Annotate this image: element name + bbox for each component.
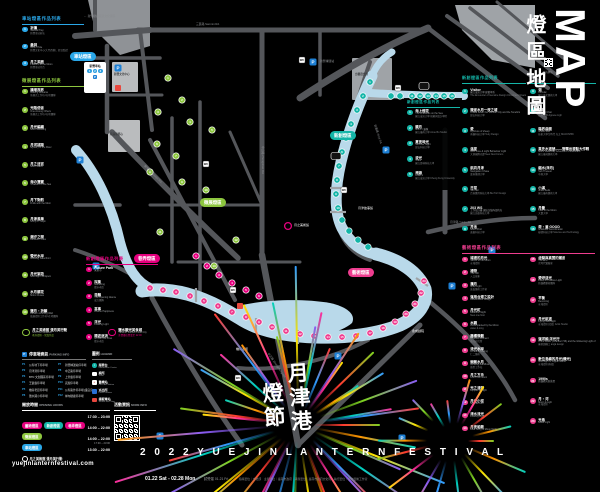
artwork-location: 崑山科技大學 — [470, 115, 520, 118]
special-entry: 鹽水觀光美食城Yanshui Tourism Food City美食攤位營業至 … — [108, 328, 180, 338]
artwork-item: 20數位島嶼的月光(爍光)Moonlight of Digital Island… — [530, 357, 596, 377]
artwork-number: 2 — [462, 108, 468, 114]
map-artwork-marker: 13 — [311, 333, 317, 339]
artwork-number: 13 — [530, 167, 536, 173]
artwork-subtitle: Glowing Waterfront — [30, 258, 50, 261]
opening-time: 14:00 – 22:00 — [88, 437, 110, 441]
artwork-location: 次時代實驗室 — [538, 263, 565, 266]
artwork-subtitle: Floating Light — [94, 324, 108, 327]
parking-marker: P — [335, 353, 342, 360]
station-name: 新營車站 — [86, 64, 105, 68]
artwork-subtitle: Wave Light — [538, 422, 550, 425]
artwork-number: 21 — [530, 378, 536, 384]
artwork-number: 16 — [530, 226, 536, 232]
legend-heading-en: LEGEND — [101, 352, 113, 356]
artwork-number: 18 — [530, 317, 536, 323]
artwork-item: 5月光町Beautiful NightNew one floor — [462, 308, 526, 321]
artwork-location: 中原大學 — [538, 174, 554, 177]
svg-text:P: P — [450, 284, 453, 289]
artwork-subtitle: 新媒體光影裝置 — [538, 381, 555, 384]
parking-marker: P — [157, 433, 164, 440]
artwork-location: 技術大學生時代 光之 MACOSHIK — [538, 134, 574, 137]
artwork-number: 5 — [86, 321, 92, 327]
artwork-number: 13 — [462, 413, 468, 419]
svg-text:11: 11 — [410, 94, 414, 98]
artwork-location: 大葉大學 — [538, 213, 556, 216]
artwork-number: 4 — [22, 144, 28, 150]
artwork-item: 1擴增視界Waiting Diorama馬賽克工作坊×在地團隊 — [22, 88, 84, 106]
map-artwork-marker — [397, 93, 403, 99]
map-artwork-marker: 16 — [353, 333, 359, 339]
artwork-subtitle: Flowing Light — [470, 416, 484, 419]
artwork-location: 微型工作站 — [470, 367, 489, 370]
museum-label: 月之美術館 漫月美行動 — [22, 457, 62, 461]
art-list-col2: 15虛擬與真實的邂逅The End次時代實驗室16愛呀這光Flash of Po… — [530, 256, 596, 438]
map-artwork-marker: 14 — [325, 334, 331, 340]
svg-text:17: 17 — [368, 331, 372, 335]
parking-item: P9上帝廟停車場 — [58, 375, 94, 379]
artwork-number: 3 — [22, 125, 28, 131]
artwork-item: 10月之方舟Ark of the Moon — [462, 373, 526, 386]
artwork-item: 23光島Wave Light — [530, 418, 596, 438]
place-label: 月津故事館 — [358, 206, 373, 210]
map-artwork-marker: 21 — [412, 301, 418, 307]
artwork-number: 19 — [530, 337, 536, 343]
artwork-item: 5航向月津Navigation Chase嘉南藥理大學 — [462, 166, 526, 186]
map-artwork-marker: 1 — [367, 79, 373, 85]
artwork-item: 6海の寶藏Treasure of the Sea — [22, 180, 84, 198]
parking-item: P3BTN 文創園區停車場 — [22, 375, 54, 379]
artwork-location: 豪華朗機工 angá design — [538, 344, 596, 347]
artwork-item: 16愛呀這光Flash of Positive Light新媒體藝術團隊 — [530, 276, 596, 296]
artwork-location: 入口意象 — [470, 276, 480, 279]
artwork-location: New one floor — [470, 315, 486, 318]
artwork-number: 3 — [22, 61, 28, 67]
svg-text:P: P — [384, 148, 387, 153]
festival-dates: 01.22 Sat - 02.28 Mon — [145, 476, 195, 482]
artwork-item: 5溯源Artist S國立成功大學 Cheng Kung University — [407, 171, 460, 187]
special-entry-icon — [108, 329, 116, 337]
artwork-number: 1 — [462, 89, 468, 95]
artwork-item: 11臨界曲面Graffiti and技術大學生時代 光之 MACOSHIK — [530, 127, 596, 147]
artwork-subtitle: Boat Song of Moon Night — [470, 429, 497, 432]
svg-text:12: 12 — [234, 238, 238, 242]
artwork-item: 3愛A picture of sheep南臺科技大學 Tetry Design — [462, 127, 526, 147]
artwork-item: 15月暈Halo of the Moon大葉大學 — [530, 206, 596, 226]
map-artwork-marker: 8 — [334, 177, 340, 183]
svg-text:20: 20 — [404, 312, 408, 316]
artwork-number: 11 — [462, 387, 468, 393]
artwork-item: 4月河謎蹤Mystery of the River — [22, 143, 84, 161]
parking-icon: P — [22, 352, 27, 357]
artwork-location: The Encounter of Genuine Design Unrushed… — [470, 95, 526, 98]
legend-heading-zh: 圖例 — [92, 352, 100, 356]
place-label: 永成戲院 — [412, 329, 424, 333]
moreinfo-heading-zh: 活動資訊 — [114, 402, 130, 407]
svg-text:10: 10 — [336, 206, 340, 210]
artwork-item: 12月光小徑Moonlit Path — [462, 399, 526, 412]
artwork-number: 4 — [407, 156, 413, 162]
artwork-location: 國立臺南大學 Anne Bo Studio — [415, 132, 447, 135]
artwork-location: 水域燈區(北段) Artist Studio — [538, 324, 568, 327]
artwork-location: 水域燈區 — [538, 404, 552, 407]
artwork-subtitle: Moon Maze — [30, 166, 44, 169]
svg-text:WC: WC — [300, 58, 304, 62]
artwork-location: 新營車站前站 — [30, 33, 44, 36]
svg-text:15: 15 — [442, 94, 446, 98]
block-label: 台糖宿舍群 — [355, 72, 368, 76]
artwork-location: 樹德科技大學 Science and Technology — [538, 232, 579, 235]
artwork-location: 新媒體藝術團隊 — [538, 283, 561, 286]
artwork-item: 2競逐水月一夜之城Chase Down the Wonder City and … — [462, 108, 526, 128]
art-list-heading: 藝術燈區作品列表 — [462, 245, 595, 254]
svg-text:14: 14 — [326, 335, 330, 339]
artwork-location: 馬賽克工作坊×在地團隊 — [30, 95, 55, 98]
map-artwork-marker: 3 — [216, 272, 222, 278]
parking-icon: P — [93, 75, 97, 79]
artwork-item: 7蜃樓微觀Covered Moment微光研究所 — [462, 334, 526, 347]
inset-list: 1海上煙花The Fireworks on the Sea國立成功大學 規劃與設… — [407, 109, 460, 187]
artwork-number: 5 — [407, 172, 413, 178]
artwork-number: 3 — [86, 294, 92, 300]
parking-item: P7新營轉運站停車場 — [58, 363, 94, 367]
artwork-number: 23 — [530, 418, 536, 424]
artwork-location: 成大團隊 — [94, 300, 116, 303]
artwork-number: 1 — [22, 27, 28, 33]
artwork-number: 15 — [530, 257, 536, 263]
map-artwork-marker: 12 — [297, 331, 303, 337]
artwork-item: 4喜事Double Happiness — [86, 307, 158, 321]
more-info: 活動資訊 MORE INFO — [114, 402, 156, 446]
artwork-location: 國立成功大學 規劃與設計學院 — [415, 116, 447, 119]
svg-text:P: P — [311, 60, 314, 65]
artwork-item: 4溫度With Love & Light Behaviour Light大港國際… — [462, 147, 526, 167]
svg-text:13: 13 — [426, 94, 430, 98]
map-artwork-marker: 10 — [269, 324, 275, 330]
zone-badge: 徵展燈區 — [200, 198, 226, 207]
artwork-number: 10 — [22, 254, 28, 260]
svg-text:P: P — [116, 66, 119, 71]
opencall-list: 1擴增視界Waiting Diorama馬賽克工作坊×在地團隊2光陰使者One … — [22, 88, 84, 327]
artwork-location: 國立臺南藝術大學 — [538, 193, 557, 196]
road-label: 月津路 Yuejin Rd. — [450, 220, 472, 224]
moreinfo-heading-en: MORE INFO — [131, 403, 147, 407]
footer-info-line: 01.22 Sat - 02.28 Mon 試營運 01.21 Fri 指導單位… — [145, 467, 475, 485]
artwork-number: 15 — [530, 206, 536, 212]
artwork-location: 台南應用科技大學 Bei Tori Design — [470, 193, 506, 196]
artwork-item: 16荷・重 GOODGratitude Sanctification樹德科技大學… — [530, 225, 596, 245]
event-qr-code — [114, 415, 140, 441]
map-artwork-marker: 3 — [173, 289, 179, 295]
artwork-subtitle: Moonlight Whispers — [30, 276, 51, 279]
artwork-number: 2 — [22, 107, 28, 113]
artwork-item: 2光陰使者One Among Others馬賽克工作坊×在地團隊 — [22, 106, 84, 124]
artwork-number: 3 — [462, 283, 468, 289]
artwork-number: 13 — [22, 309, 28, 315]
map-artwork-marker: 15 — [339, 334, 345, 340]
artwork-item: 15虛擬與真實的邂逅The End次時代實驗室 — [530, 256, 596, 276]
map-artwork-marker: 7 — [173, 153, 179, 159]
map-artwork-marker: 2 — [360, 93, 366, 99]
artwork-number: 2 — [22, 44, 28, 50]
map-artwork-marker: 22 — [418, 290, 424, 296]
legend-item: i服務台Information Center — [92, 363, 132, 369]
artwork-number: 14 — [462, 426, 468, 432]
parking-item: P5橋南老街停車場 — [22, 388, 54, 392]
hours-row: 車站燈區14:00 – 22:0017:30 – 23:00 — [22, 436, 110, 447]
artwork-location: water & long — [470, 328, 498, 331]
artwork-number: 4 — [462, 296, 468, 302]
artwork-number: 7 — [22, 199, 28, 205]
parking-info: P 停車場資訊 PARKING INFO P1公有地下停車場P2月津港停車場P3… — [22, 352, 86, 400]
hours-row: 月之美術館 漫月美行動13:30 – 22:00 — [22, 447, 110, 458]
toilet-icon — [92, 372, 97, 377]
artwork-number: 5 — [22, 162, 28, 168]
opening-time: 14:00 – 22:00 — [88, 426, 110, 430]
opening-time: 13:30 – 22:00 — [88, 448, 110, 452]
artwork-number: 12 — [530, 147, 536, 153]
map-artwork-marker: 10 — [335, 205, 341, 211]
road-label: 三民路 Sanmin Rd. — [196, 22, 220, 26]
artwork-item: 19運河鯨,浮光行In the Water (Channel 746) and … — [530, 337, 596, 357]
map-title-zh: 燈區地圖 — [520, 14, 549, 122]
artwork-item: 9潮汐之間Between Tides — [22, 235, 84, 253]
legend-item: 派出所Police Station — [92, 388, 132, 394]
map-artwork-marker: 9 — [179, 179, 185, 185]
parking-item: P8中正路停車場 — [58, 369, 94, 373]
map-artwork-marker: 4 — [187, 119, 193, 125]
svg-text:P: P — [158, 434, 161, 439]
hours-heading-en: OPENING HOURS — [39, 403, 63, 407]
zone-badge: 新創燈區 — [330, 131, 356, 140]
artwork-location: 水域燈區(南段) — [538, 364, 571, 367]
artwork-number: 9 — [22, 236, 28, 242]
map-title-en: MAP — [546, 8, 594, 110]
svg-text:10: 10 — [204, 188, 208, 192]
artwork-number: 2 — [462, 270, 468, 276]
map-artwork-marker — [355, 237, 361, 243]
artwork-number: 4 — [462, 147, 468, 153]
artwork-item: 1海上煙花The Fireworks on the Sea國立成功大學 規劃與設… — [407, 109, 460, 125]
artwork-location: 徵展燈區工作坊×在地團隊 — [30, 316, 58, 319]
artwork-location: 嘉南藥理大學 — [470, 174, 489, 177]
artwork-number: 6 — [22, 180, 28, 186]
artwork-number: 2 — [86, 280, 92, 286]
map-artwork-marker — [388, 93, 394, 99]
artwork-number: 6 — [462, 322, 468, 328]
legend-item: +醫療站First-Aid Station — [92, 380, 132, 386]
artwork-item: 11光之漣漪Ripples of Light — [462, 386, 526, 399]
map-artwork-marker: 13 — [211, 263, 217, 269]
svg-text:16: 16 — [450, 94, 454, 98]
legend-items: i服務台Information Center廁所Toilet+醫療站First-… — [92, 363, 132, 403]
opencall-list-heading: 徵展燈區作品列表 — [22, 78, 84, 87]
artwork-number: 4 — [86, 307, 92, 313]
svg-text:22: 22 — [419, 291, 423, 295]
map-artwork-marker: 13 — [425, 93, 431, 99]
artwork-location: 國立臺灣藝術大學 — [538, 154, 589, 157]
artwork-item: 5月之迷宮Moon Maze — [22, 162, 84, 180]
artwork-location: 南臺科技大學 Tetry Design — [470, 134, 498, 137]
artwork-location: 水域燈區 — [538, 304, 549, 307]
info-icon: i — [92, 363, 97, 368]
parking-heading-zh: 停車場資訊 — [29, 352, 48, 356]
artwork-number: 1 — [86, 267, 92, 273]
map-artwork-marker: 5 — [201, 298, 207, 304]
artwork-item: 12水月鏡花Mirror Flower — [22, 290, 84, 308]
artwork-item: 3月之美臉Platform of the Moon新營車站月台 — [22, 60, 84, 77]
artwork-number: 16 — [530, 277, 536, 283]
map-artwork-marker: 4 — [187, 293, 193, 299]
artwork-item: 13鹽月・祈願Lantern Wishing Wall徵展燈區工作坊×在地團隊 — [22, 309, 84, 327]
artwork-item: 11月光絮語Moonlight Whispers — [22, 272, 84, 290]
map-artwork-marker: 15 — [441, 93, 447, 99]
artwork-subtitle: Ripples of Light — [470, 390, 486, 393]
artwork-item: 9蜿蜒水月Winding Backflow微型工作站 — [462, 360, 526, 373]
artwork-item: 12莫氏水道號——管釋出發點大作戰Mohs Waterway Adventure… — [530, 147, 596, 167]
artwork-item: 3目醮The Opening Glance成大團隊 — [86, 293, 158, 307]
artwork-item: 8月津風華Glory of Yuejin — [22, 217, 84, 235]
map-artwork-marker: 20 — [403, 311, 409, 317]
artwork-subtitle: Drink with the Moon — [30, 203, 51, 206]
svg-text:P: P — [336, 354, 339, 359]
festival-map-poster: 1234567891011121314151612345678910111213… — [0, 0, 600, 492]
artwork-location: 水域燈區 — [470, 263, 490, 266]
organizer-credits: 指導單位｜文化部 主辦單位｜臺南市政府 承辦單位｜臺南市政府文化局 執行單位｜都… — [239, 477, 368, 481]
artwork-number: 14 — [530, 186, 536, 192]
artwork-location: 馬賽克工作坊×在地團隊 — [30, 114, 55, 117]
artwork-number: 1 — [462, 257, 468, 263]
station-artwork-number: 1 — [87, 69, 91, 73]
opening-time: 17:30 – 23:00 — [88, 415, 110, 419]
parking-marker: P — [383, 147, 390, 154]
parking-item: P4王爺廟停車場 — [22, 381, 54, 385]
map-artwork-marker: 11 — [157, 229, 163, 235]
artwork-number: 6 — [462, 186, 468, 192]
festival-title-en: 2 0 2 2 Y U E J I N L A N T E R N F E S … — [140, 447, 470, 458]
artwork-number: 7 — [462, 335, 468, 341]
water-stage-icon — [331, 153, 341, 160]
artwork-item: 7月下對酌Drink with the Moon — [22, 198, 84, 216]
svg-text:10: 10 — [270, 325, 274, 329]
mini-qr-caption: 官方網站 — [543, 70, 553, 74]
special-entry: 月之美術館 漫月美行動Moon Art Museum巷弄燈區・常設作品 — [22, 328, 94, 338]
artwork-number: 8 — [462, 348, 468, 354]
svg-text:11: 11 — [158, 230, 162, 234]
map-artwork-marker: 11 — [283, 328, 289, 334]
artwork-subtitle: Mirror Flower — [30, 295, 44, 298]
map-artwork-marker: 17 — [367, 330, 373, 336]
preopen-date: 試營運 01.21 Fri — [204, 477, 229, 481]
artwork-item: 10螢光水岸Glowing Waterfront — [22, 254, 84, 272]
svg-text:12: 12 — [298, 332, 302, 336]
map-artwork-marker: 7 — [229, 309, 235, 315]
artwork-subtitle: Ark of the Moon — [470, 377, 487, 380]
map-artwork-marker: 1 — [165, 75, 171, 81]
artwork-item: 6日常Sun rail台南應用科技大學 Bei Tori Design — [462, 186, 526, 206]
road-label: 中山路 Zhongshan Rd. — [261, 146, 265, 174]
police-icon — [92, 389, 97, 394]
artwork-item: 3夏夜時光Summer Night崑山科技大學 — [407, 140, 460, 156]
svg-text:16: 16 — [354, 334, 358, 338]
artwork-location: 遠東科技大學 — [470, 232, 484, 235]
artwork-number: 2 — [407, 125, 413, 131]
place-label: 橋南老街 — [236, 347, 248, 351]
artwork-item: 2採集Gathering鹽水老街 — [86, 280, 158, 294]
road-label: ← 新營糖廠鐵道文化園區 — [84, 14, 116, 18]
map-artwork-marker: 4 — [348, 121, 354, 127]
inset-list-heading: 新創燈區作品列表 — [407, 100, 460, 108]
artwork-item: 8流光水岸A Fading Racing仁二藝術 — [462, 347, 526, 360]
artwork-number: 10 — [462, 374, 468, 380]
map-artwork-marker: 3 — [354, 107, 360, 113]
artwork-number: 3 — [407, 141, 413, 147]
map-artwork-marker: 3 — [155, 109, 161, 115]
artwork-location: 禹禹藝術工作室 — [470, 289, 487, 292]
svg-text:19: 19 — [393, 320, 397, 324]
parking-marker: P — [399, 435, 406, 442]
festival-logo-2: 燈節 — [256, 381, 289, 431]
artwork-number: 12 — [22, 291, 28, 297]
map-artwork-marker: 11 — [409, 93, 415, 99]
place-label: 月之美術館 — [294, 223, 309, 227]
artwork-number: 8 — [462, 226, 468, 232]
artwork-number: 9 — [462, 361, 468, 367]
parking-item: P12岸內糖廠停車場 — [58, 394, 94, 398]
map-artwork-marker: 6 — [256, 293, 262, 299]
artwork-number: 22 — [530, 398, 536, 404]
artwork-subtitle: Reasonable Design — [470, 299, 494, 302]
map-artwork-marker — [365, 244, 371, 250]
map-artwork-marker: 19 — [392, 319, 398, 325]
station-artwork-number: 2 — [93, 69, 97, 73]
artwork-item: 211990s新媒體光影裝置 — [530, 377, 596, 397]
parking-item: P6鹽水國小停車場 — [22, 394, 54, 398]
zone-badge: 藝術燈區 — [348, 268, 374, 277]
artwork-number: 7 — [462, 206, 468, 212]
map-artwork-marker: 23 — [421, 278, 427, 284]
artwork-item: 13津水流光Flowing Light — [462, 412, 526, 425]
zone-badge: 車站燈區 — [70, 52, 96, 61]
artwork-item: 17平衡Becoming水域燈區 — [530, 296, 596, 316]
map-artwork-marker — [346, 228, 352, 234]
artwork-location: 新營車站月台 — [30, 67, 52, 70]
legend: 圖例 LEGEND i服務台Information Center廁所Toilet… — [92, 352, 132, 405]
artwork-item: 3月光編織Moon Weaving — [22, 125, 84, 143]
artwork-subtitle: Moon Weaving — [30, 129, 46, 132]
map-artwork-marker: 2 — [179, 97, 185, 103]
map-artwork-marker: 9 — [256, 319, 262, 325]
artwork-item: 3瀰月Gran Light禹禹藝術工作室 — [462, 282, 526, 295]
mini-qr-code — [544, 58, 553, 67]
parking-item: P2月津港停車場 — [22, 369, 54, 373]
svg-text:WC: WC — [342, 188, 346, 192]
station-inset-box: 新營車站 123 P — [84, 62, 106, 93]
parking-item: P10武廟停車場 — [58, 381, 94, 385]
artwork-item: 8月池Moon Pool遠東科技大學 — [462, 225, 526, 245]
svg-text:WC: WC — [236, 376, 240, 380]
artwork-location: 崑山科技大學 — [415, 147, 430, 150]
parking-list: P1公有地下停車場P2月津港停車場P3BTN 文創園區停車場P4王爺廟停車場P5… — [22, 363, 86, 400]
map-artwork-marker: 5 — [243, 287, 249, 293]
artwork-number: 12 — [462, 400, 468, 406]
parking-heading-en: PARKING INFO — [49, 352, 69, 356]
artwork-item: 4波光Tides國立雲林科技大學 — [407, 156, 460, 172]
block-label: 南瀛綠都心 — [110, 132, 123, 136]
artwork-number: 11 — [22, 272, 28, 278]
newcreation-list-heading: 新創燈區作品列表 — [462, 75, 526, 84]
artwork-subtitle: 未來市 — [94, 270, 113, 273]
